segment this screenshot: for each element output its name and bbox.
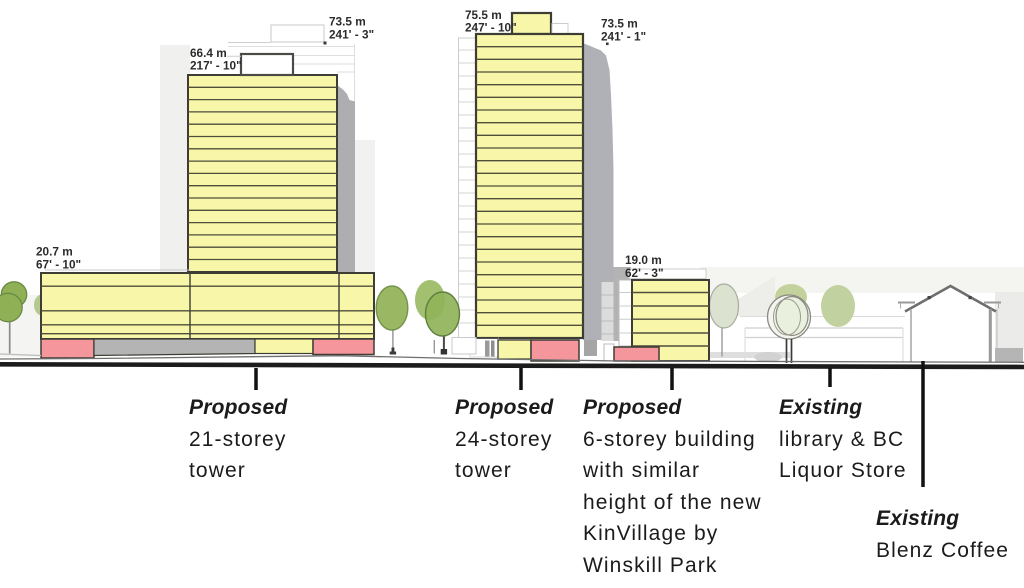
svg-text:241' - 1": 241' - 1" [601,30,646,44]
svg-text:241' - 3": 241' - 3" [329,28,374,42]
svg-text:73.5 m: 73.5 m [329,15,366,29]
svg-text:19.0 m: 19.0 m [625,253,662,267]
svg-text:20.7 m: 20.7 m [36,245,73,259]
svg-text:247' - 10": 247' - 10" [465,21,517,35]
svg-text:62' - 3": 62' - 3" [625,266,664,280]
svg-text:73.5 m: 73.5 m [601,17,638,31]
svg-text:217' - 10": 217' - 10" [190,58,242,72]
svg-text:67' - 10": 67' - 10" [36,258,81,272]
